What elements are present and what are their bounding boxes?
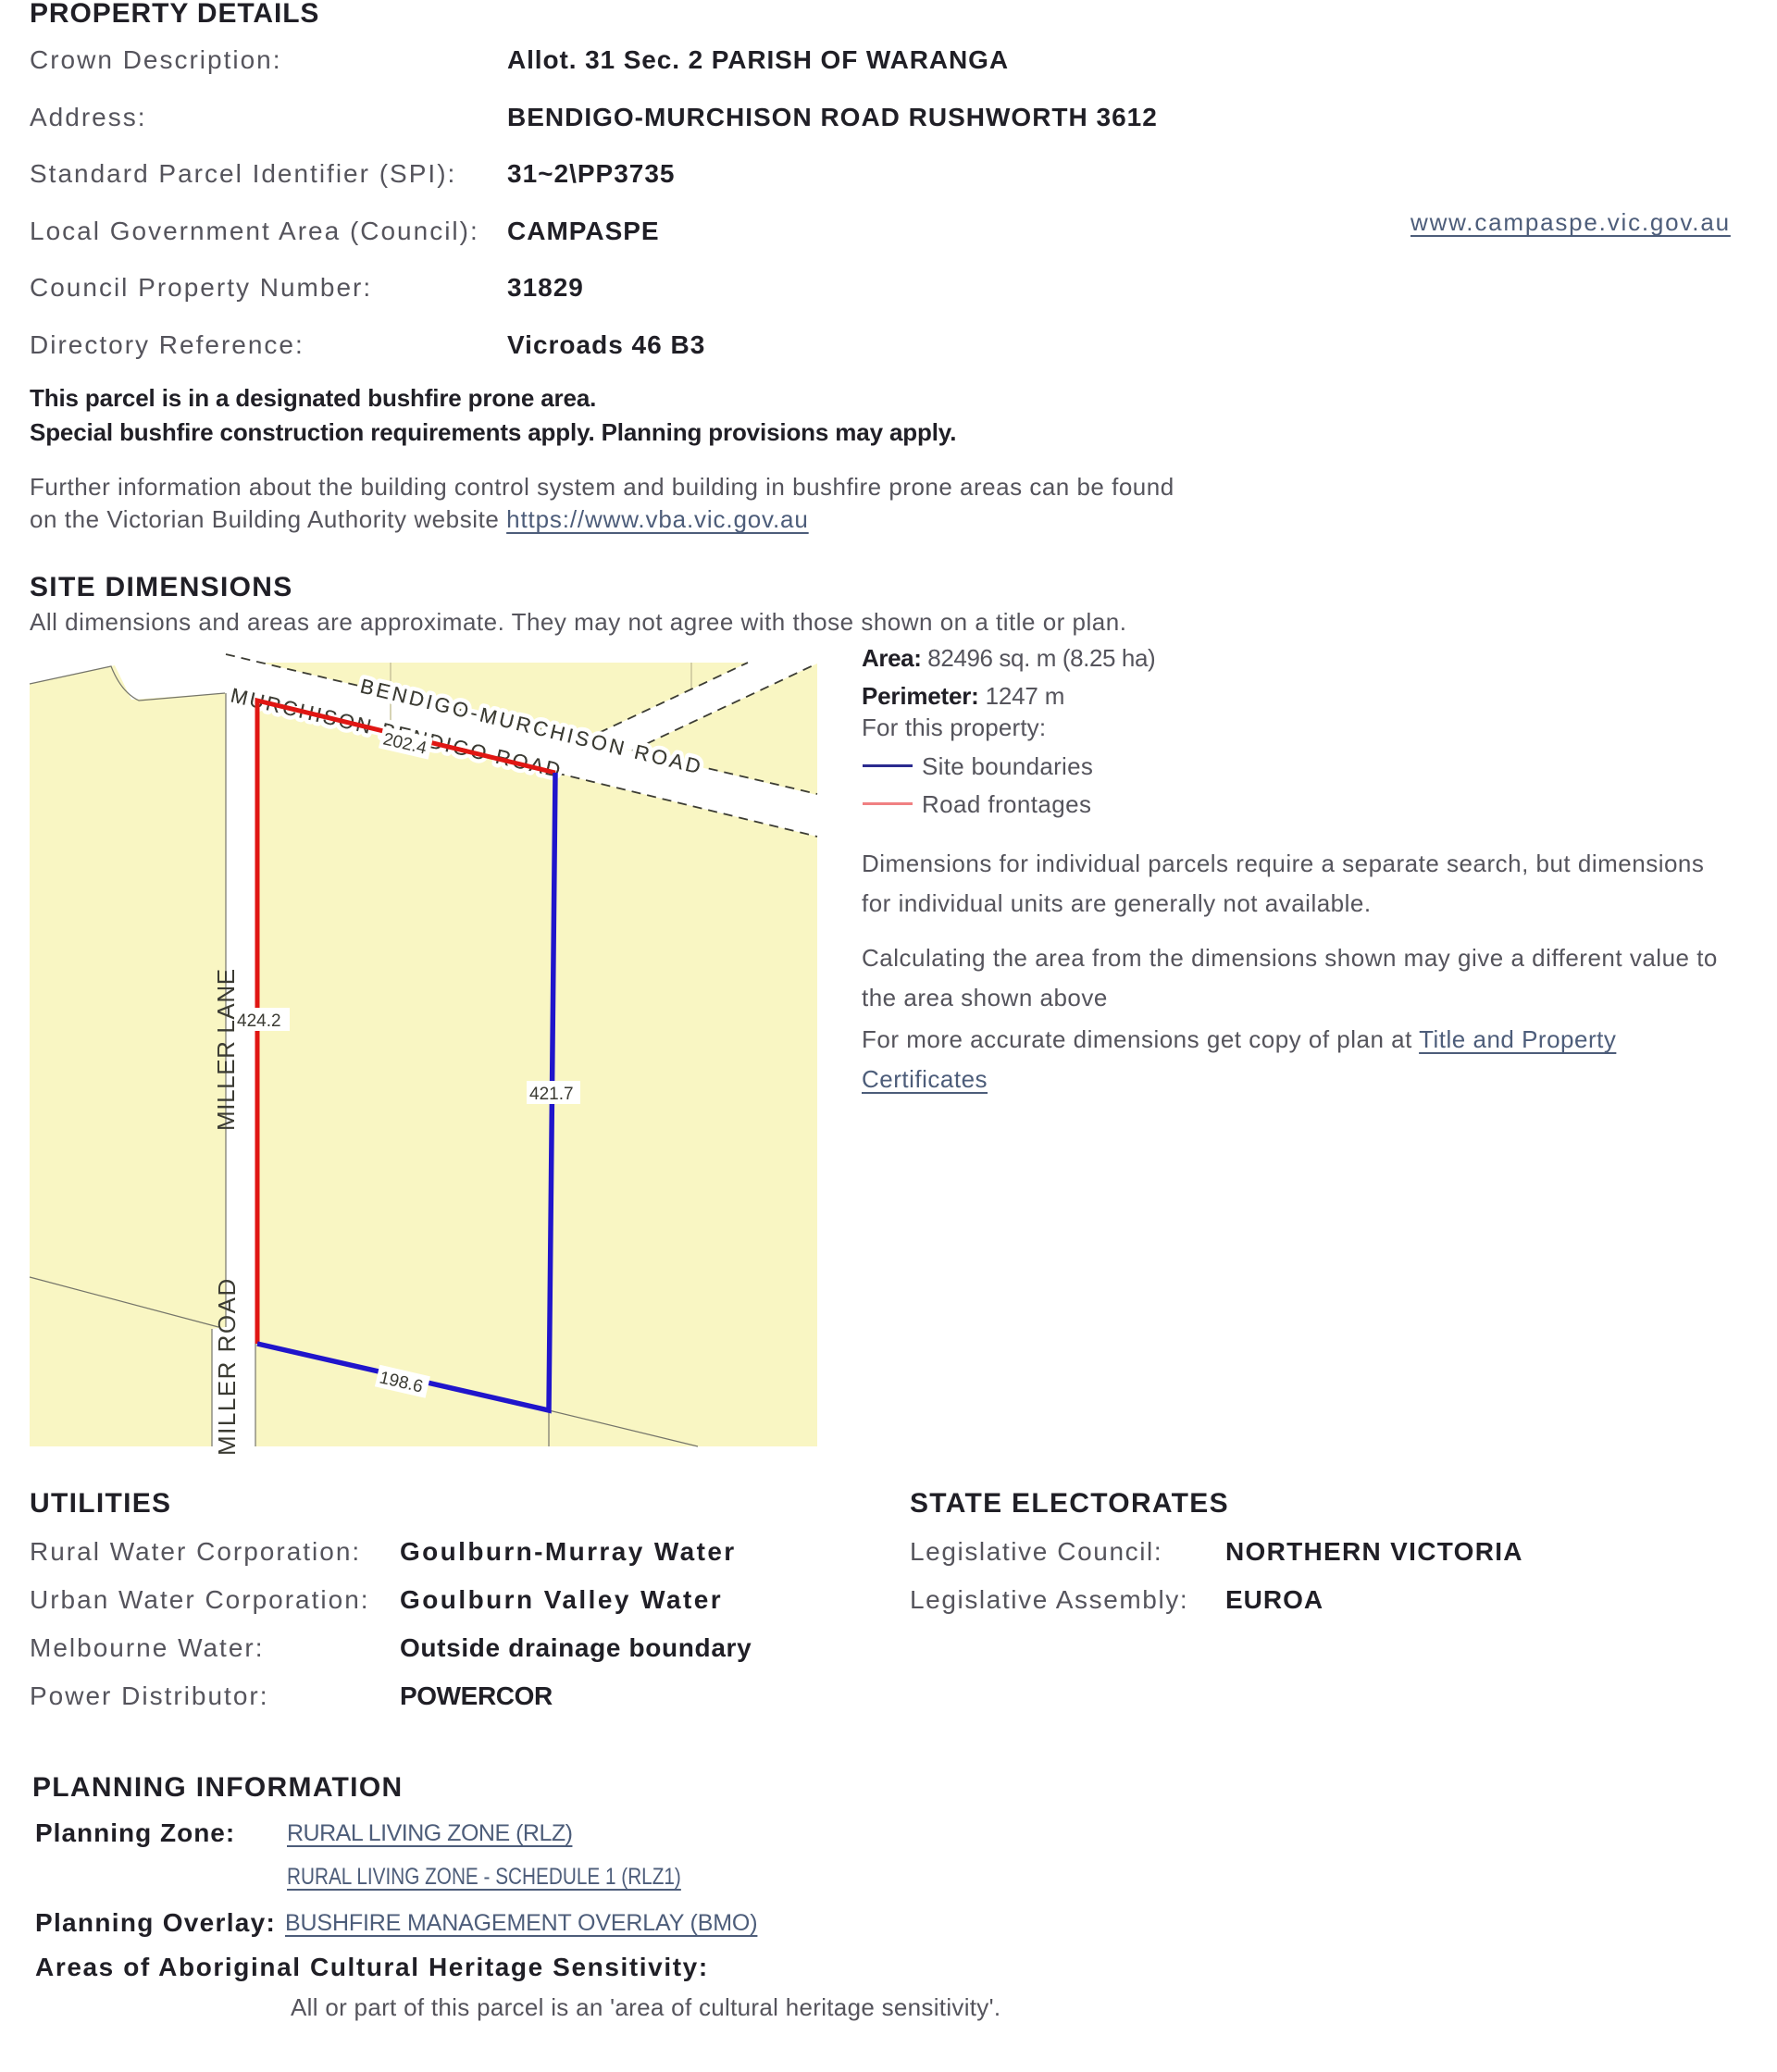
svg-text:MILLER ROAD: MILLER ROAD bbox=[213, 1277, 241, 1456]
svg-text:MILLER LANE: MILLER LANE bbox=[212, 968, 240, 1131]
svg-text:424.2: 424.2 bbox=[237, 1011, 281, 1031]
svg-text:421.7: 421.7 bbox=[529, 1085, 574, 1104]
